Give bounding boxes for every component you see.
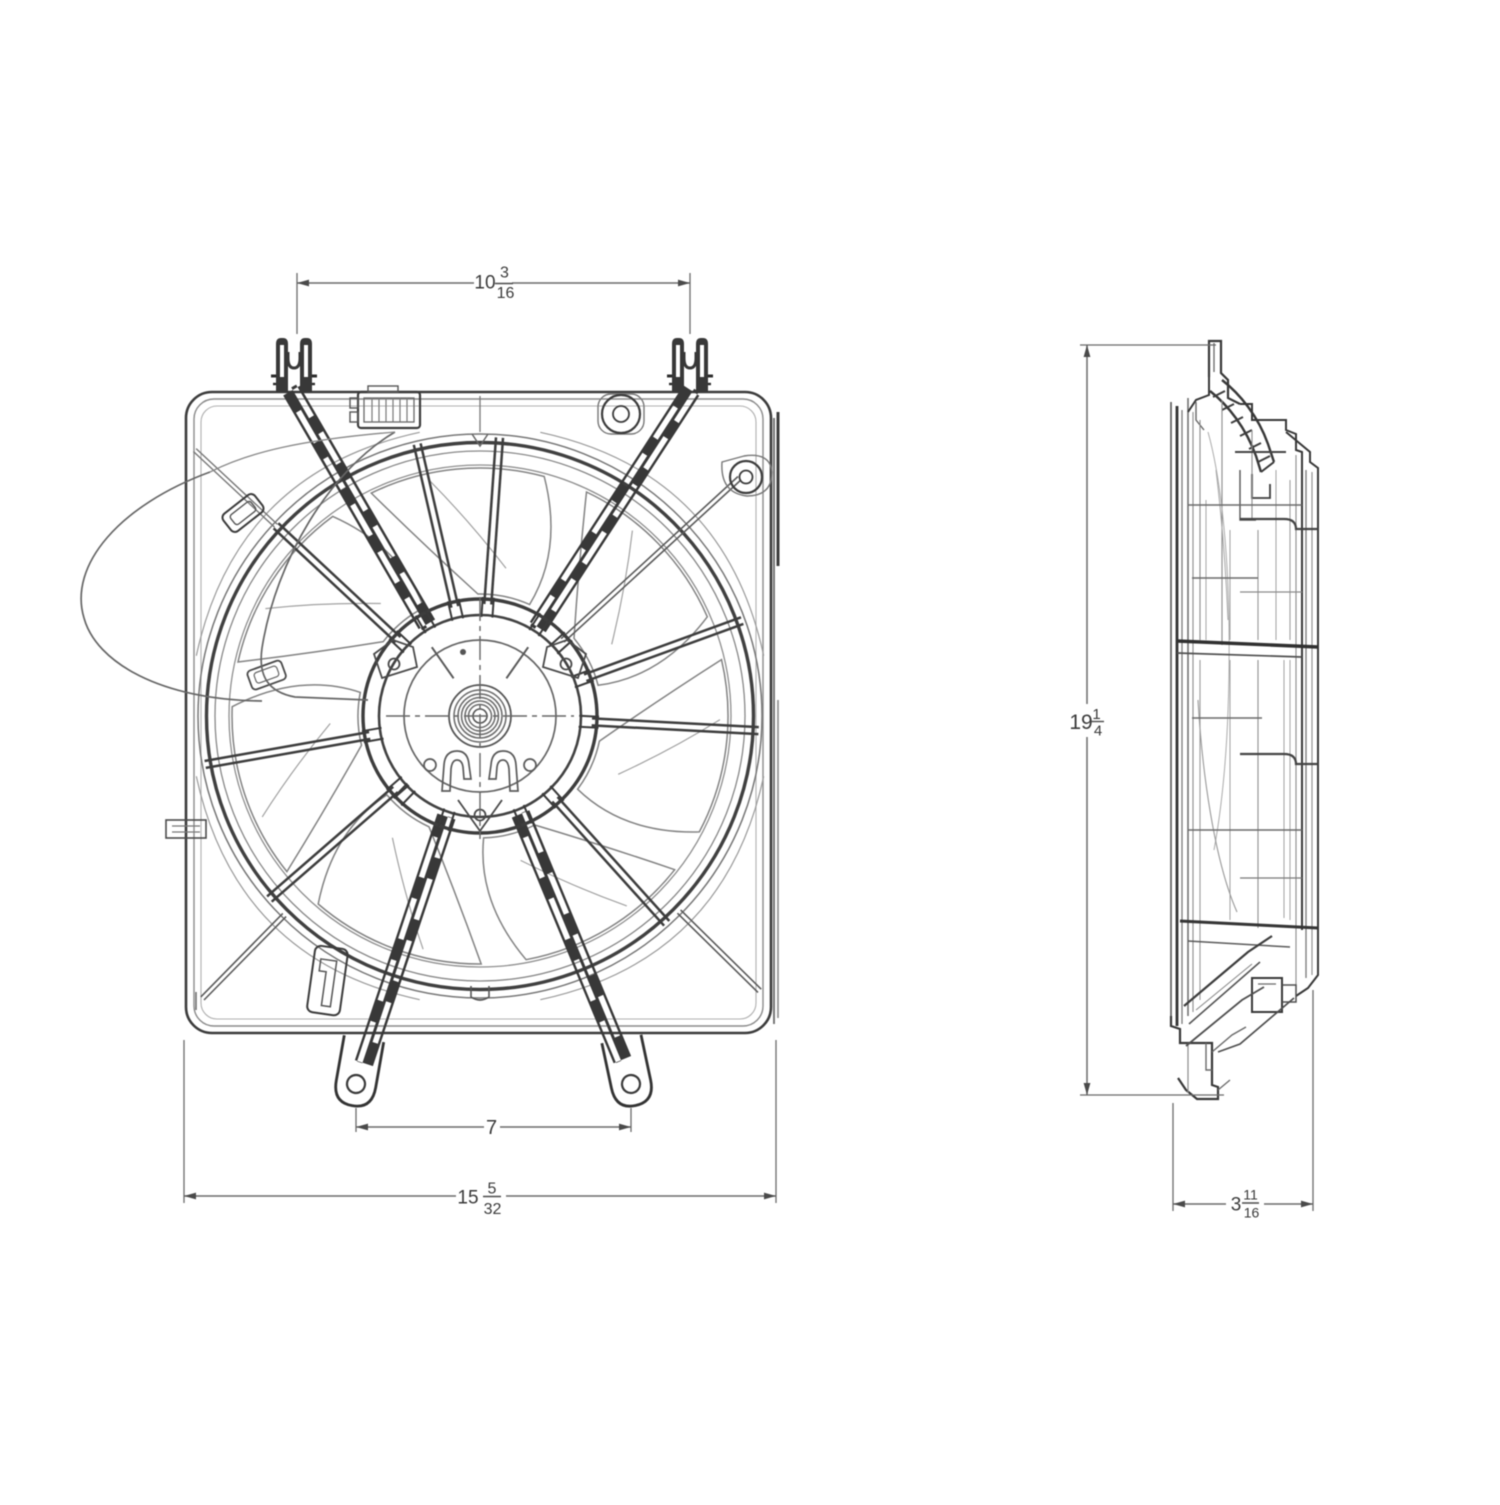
svg-text:32: 32 bbox=[484, 1201, 502, 1218]
svg-text:16: 16 bbox=[1244, 1205, 1260, 1221]
svg-text:3: 3 bbox=[1231, 1195, 1242, 1216]
svg-text:3: 3 bbox=[500, 265, 509, 282]
svg-text:5: 5 bbox=[488, 1181, 497, 1198]
svg-text:10: 10 bbox=[474, 273, 495, 294]
svg-text:1: 1 bbox=[1092, 706, 1100, 723]
svg-text:19: 19 bbox=[1069, 711, 1092, 734]
svg-text:11: 11 bbox=[1243, 1187, 1258, 1203]
svg-text:15: 15 bbox=[457, 1188, 478, 1209]
svg-text:7: 7 bbox=[486, 1117, 497, 1139]
svg-text:16: 16 bbox=[497, 285, 515, 302]
svg-text:4: 4 bbox=[1094, 723, 1102, 740]
